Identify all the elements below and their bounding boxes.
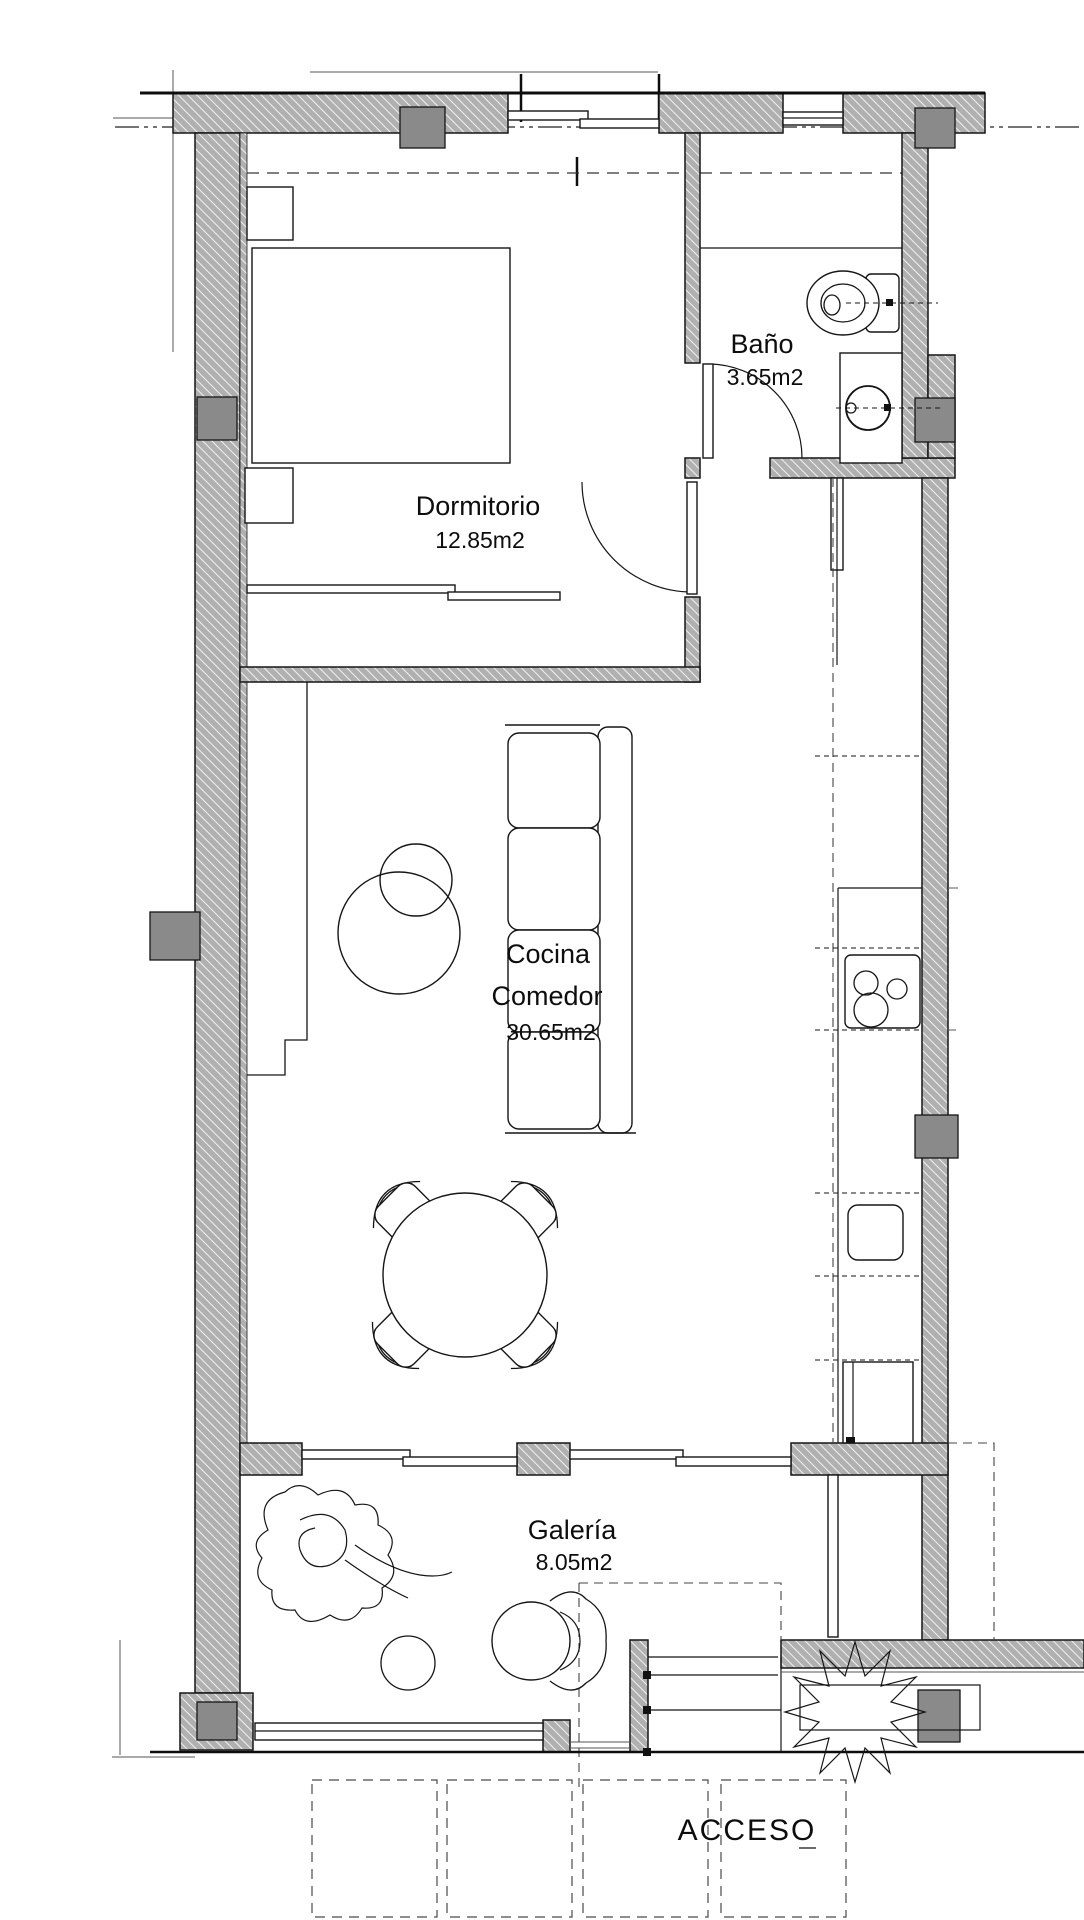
column bbox=[197, 397, 237, 440]
label-cocina: Cocina bbox=[506, 939, 591, 969]
floor-plan-page: Dormitorio 12.85m2 Baño 3.65m2 Cocina Co… bbox=[0, 0, 1084, 1920]
wall-kitchen-south-pier bbox=[517, 1443, 570, 1475]
wall-top-segment bbox=[173, 93, 508, 133]
wall-entry-post bbox=[630, 1640, 648, 1752]
wall-stub bbox=[685, 458, 700, 478]
step-marker bbox=[643, 1748, 651, 1756]
label-dormitorio: Dormitorio bbox=[416, 491, 541, 521]
wall-kitchen-south-pier bbox=[791, 1443, 948, 1475]
label-cocina-area: 30.65m2 bbox=[506, 1019, 596, 1045]
axis-marker bbox=[886, 299, 893, 306]
wall-top-segment bbox=[843, 93, 985, 133]
column bbox=[915, 1115, 958, 1158]
wall-bottom-right-band bbox=[781, 1640, 1084, 1668]
wall-left bbox=[195, 133, 240, 1693]
column bbox=[400, 107, 445, 148]
nightstand bbox=[247, 187, 293, 240]
wall-bathroom-left bbox=[685, 133, 700, 363]
nightstand bbox=[245, 468, 293, 523]
dishwasher bbox=[843, 1362, 913, 1443]
hob bbox=[845, 955, 920, 1028]
step-marker bbox=[643, 1671, 651, 1679]
floor-plan-drawing: Dormitorio 12.85m2 Baño 3.65m2 Cocina Co… bbox=[0, 0, 1084, 1920]
bed bbox=[252, 248, 510, 463]
label-bano-area: 3.65m2 bbox=[727, 364, 804, 390]
wall-top-segment bbox=[659, 93, 783, 133]
column bbox=[150, 912, 200, 960]
kitchen-sink bbox=[848, 1205, 903, 1260]
wall-bedroom-kitchen bbox=[240, 667, 700, 682]
label-galeria-area: 8.05m2 bbox=[536, 1549, 613, 1575]
step-marker bbox=[643, 1706, 651, 1714]
column bbox=[197, 1702, 237, 1740]
column bbox=[915, 108, 955, 148]
wall-kitchen-south-pier bbox=[240, 1443, 302, 1475]
column bbox=[918, 1690, 960, 1742]
label-dormitorio-area: 12.85m2 bbox=[435, 527, 525, 553]
label-galeria: Galería bbox=[528, 1515, 618, 1545]
wall-left-lining bbox=[240, 133, 247, 1443]
dining-set bbox=[361, 1170, 569, 1380]
window-galeria-east bbox=[828, 1475, 838, 1637]
wall-galeria-sill-post bbox=[543, 1720, 570, 1752]
label-comedor: Comedor bbox=[491, 981, 602, 1011]
column bbox=[915, 398, 955, 442]
label-bano: Baño bbox=[730, 329, 793, 359]
sofa bbox=[505, 725, 636, 1133]
axis-marker bbox=[884, 404, 891, 411]
window-top-b bbox=[783, 112, 843, 125]
dining-table bbox=[383, 1193, 547, 1357]
label-acceso: ACCESO bbox=[678, 1814, 817, 1847]
